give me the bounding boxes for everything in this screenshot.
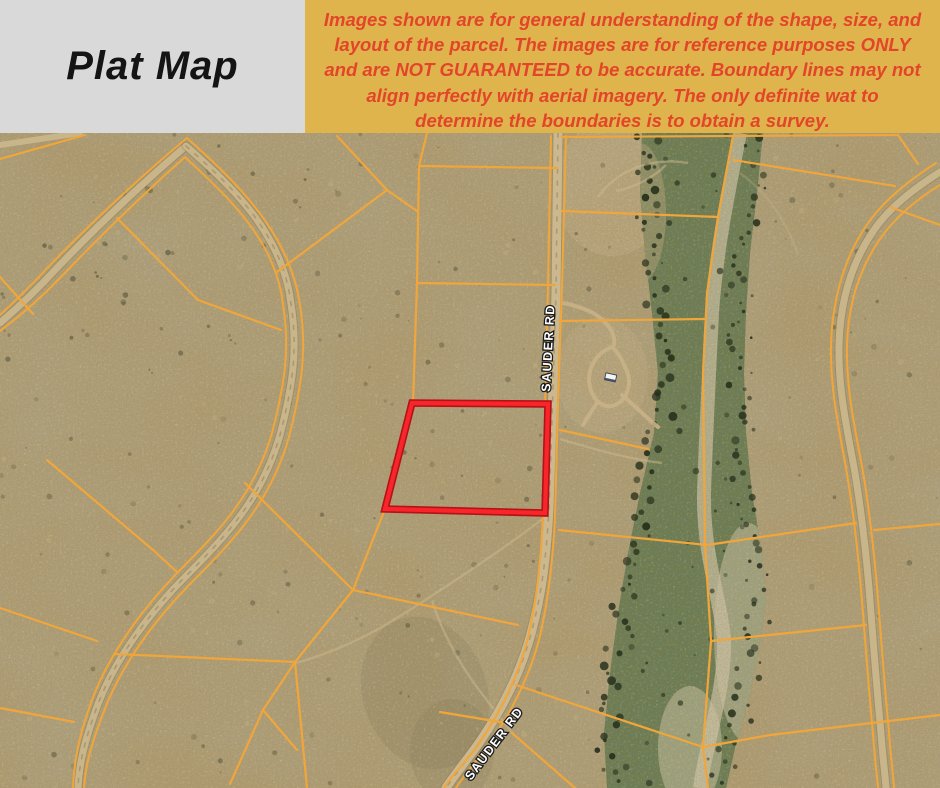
disclaimer-line: Images shown are for general understandi… <box>305 7 940 32</box>
disclaimer-line: determine the boundaries is to obtain a … <box>305 108 940 133</box>
disclaimer-line: layout of the parcel. The images are for… <box>305 32 940 57</box>
disclaimer-line: align perfectly with aerial imagery. The… <box>305 83 940 108</box>
aerial-plat-map: SAUDER RD SAUDER RD <box>0 133 940 788</box>
plat-map-flyer: Plat Map Images shown are for general un… <box>0 0 940 788</box>
disclaimer-line: and are NOT GUARANTEED to be accurate. B… <box>305 57 940 82</box>
page-title: Plat Map <box>66 44 238 89</box>
disclaimer-banner: Images shown are for general understandi… <box>305 0 940 133</box>
header: Plat Map Images shown are for general un… <box>0 0 940 133</box>
title-box: Plat Map <box>0 0 305 133</box>
